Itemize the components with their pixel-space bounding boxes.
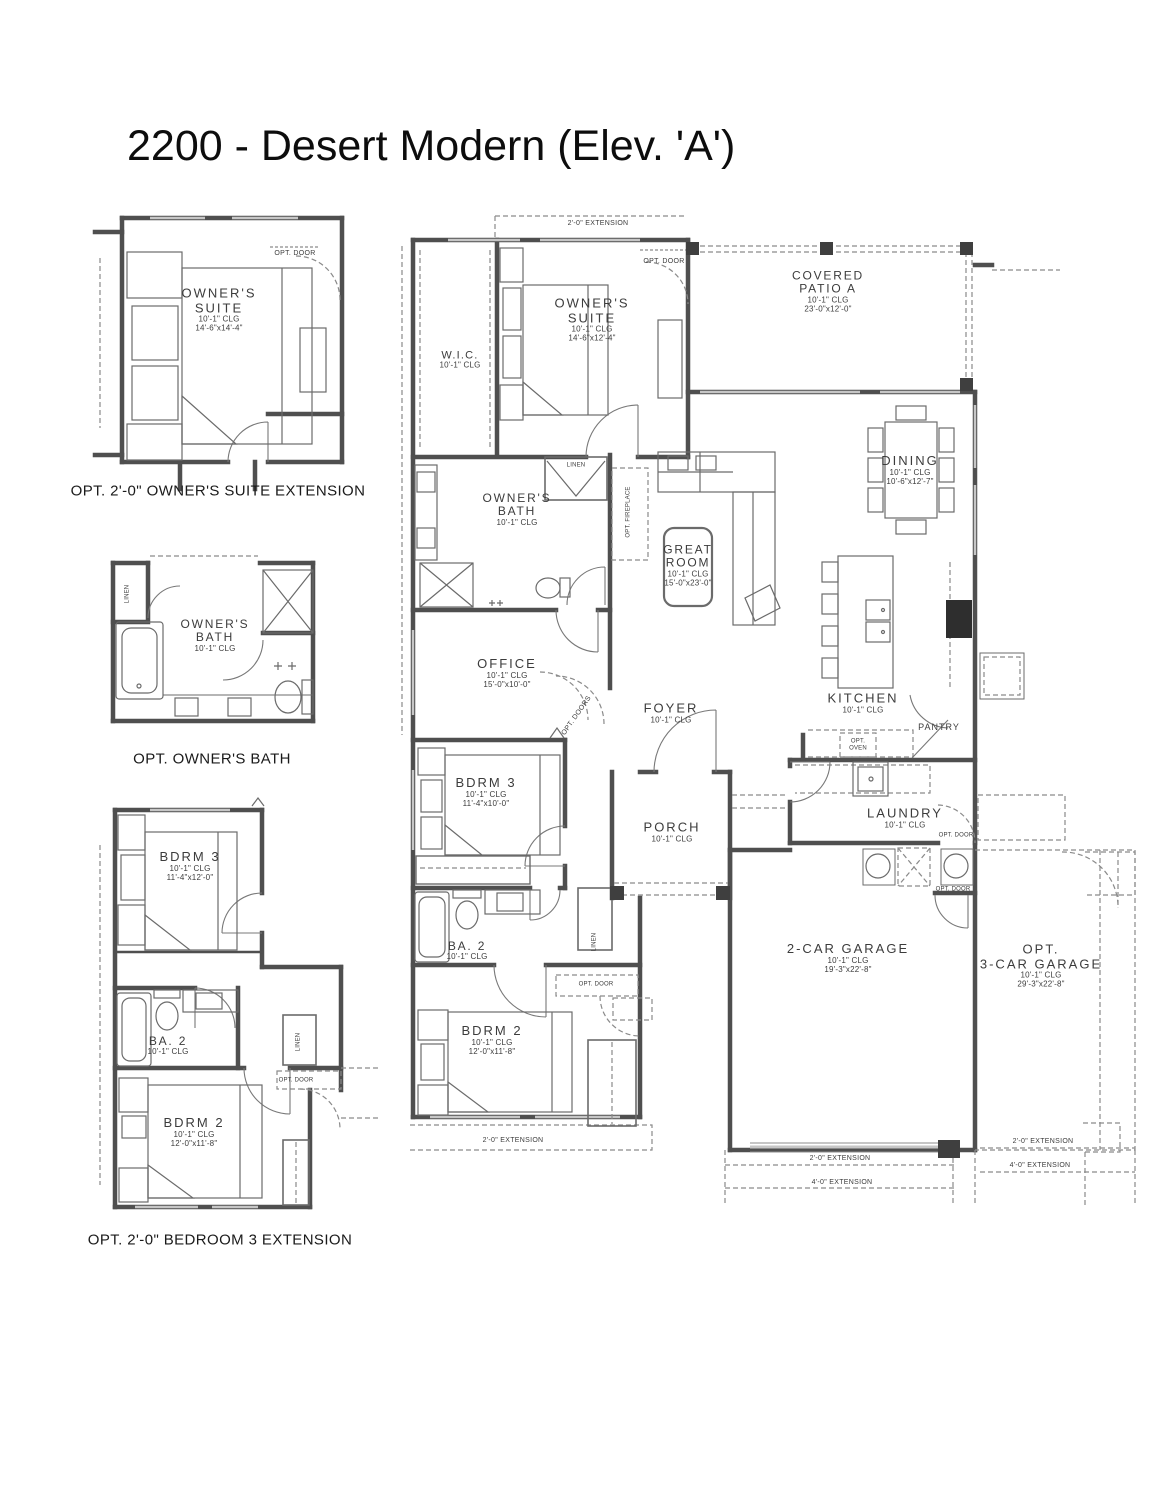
opt-door-label-ext-suite: OPT. DOOR [274, 250, 315, 258]
room-label-ba2: BA. 2 10'-1" CLG [446, 940, 487, 962]
floor-plan-sheet: 2200 - Desert Modern (Elev. 'A') OWNER'S… [0, 0, 1159, 1500]
room-label-bdrm2: BDRM 2 10'-1" CLG 12'-0"x11'-8" [461, 1024, 522, 1056]
opt-door-label-suite: OPT. DOOR [643, 258, 684, 266]
room-label-porch: PORCH 10'-1" CLG [644, 820, 701, 844]
room-label-opt-owners-bath: OWNER'S BATH 10'-1" CLG [181, 618, 250, 654]
room-label-owners-bath: OWNER'S BATH 10'-1" CLG [483, 492, 552, 528]
page-title: 2200 - Desert Modern (Elev. 'A') [127, 122, 735, 171]
room-label-ext-bdrm3: BDRM 3 10'-1" CLG 11'-4"x12'-0" [159, 850, 220, 882]
linen-label-ext-hall: LINEN [296, 1033, 303, 1052]
room-label-ext-owners-suite: OWNER'S SUITE 10'-1" CLG 14'-6"x14'-4" [182, 287, 257, 334]
room-label-ext-ba2: BA. 2 10'-1" CLG [147, 1035, 188, 1057]
caption-owners-suite-extension: OPT. 2'-0" OWNER'S SUITE EXTENSION [71, 484, 366, 501]
room-label-wic: W.I.C. 10'-1" CLG [439, 349, 480, 370]
extension-label-garage-right-2: 2'-0" EXTENSION [1013, 1138, 1074, 1146]
extension-label-bdrm2-bottom: 2'-0" EXTENSION [483, 1137, 544, 1145]
extension-label-garage-left-4: 4'-0" EXTENSION [812, 1179, 873, 1187]
room-label-owners-suite: OWNER'S SUITE 10'-1" CLG 14'-6"x12'-4" [555, 297, 630, 344]
dashed-options [100, 216, 1135, 1205]
room-label-2car-garage: 2-CAR GARAGE 10'-1" CLG 19'-3"x22'-8" [787, 942, 909, 974]
opt-fireplace-label: OPT. FIREPLACE [626, 486, 633, 537]
extension-label-garage-right-4: 4'-0" EXTENSION [1010, 1162, 1071, 1170]
room-label-covered-patio: COVERED PATIO A 10'-1" CLG 23'-0"x12'-0" [792, 270, 864, 315]
caption-bedroom3-extension: OPT. 2'-0" BEDROOM 3 EXTENSION [88, 1233, 352, 1250]
room-label-3car-garage: OPT. 3-CAR GARAGE 10'-1" CLG 29'-3"x22'-… [980, 943, 1102, 990]
linen-label-suite: LINEN [567, 463, 586, 470]
room-label-dining: DINING 10'-1" CLG 10'-6"x12'-7" [881, 454, 939, 486]
extension-label-suite-top: 2'-0" EXTENSION [568, 220, 629, 228]
linen-label-opt-bath: LINEN [125, 585, 132, 604]
room-label-ext-bdrm2: BDRM 2 10'-1" CLG 12'-0"x11'-8" [163, 1116, 224, 1148]
opt-door-label-ext-bdrm2: OPT. DOOR [279, 1078, 314, 1085]
opt-door-label-laundry: OPT. DOOR [939, 833, 974, 840]
opt-door-label-bdrm2: OPT. DOOR [579, 982, 614, 989]
room-label-great-room: GREAT ROOM 10'-1" CLG 15'-0"x23'-0" [663, 544, 712, 589]
room-label-laundry: LAUNDRY 10'-1" CLG [867, 806, 943, 830]
caption-opt-owners-bath: OPT. OWNER'S BATH [133, 752, 291, 769]
room-label-kitchen: KITCHEN 10'-1" CLG [827, 691, 898, 715]
opt-door-label-garage: OPT. DOOR [936, 887, 971, 894]
room-label-office: OFFICE 10'-1" CLG 15'-0"x10'-0" [477, 657, 537, 689]
room-label-foyer: FOYER 10'-1" CLG [644, 701, 699, 725]
room-label-bdrm3: BDRM 3 10'-1" CLG 11'-4"x10'-0" [455, 776, 516, 808]
extension-label-garage-left-2: 2'-0" EXTENSION [810, 1155, 871, 1163]
room-label-pantry: PANTRY [918, 722, 960, 732]
linen-label-hall: LINEN [592, 933, 599, 952]
opt-oven-label: OPT. OVEN [849, 738, 867, 751]
